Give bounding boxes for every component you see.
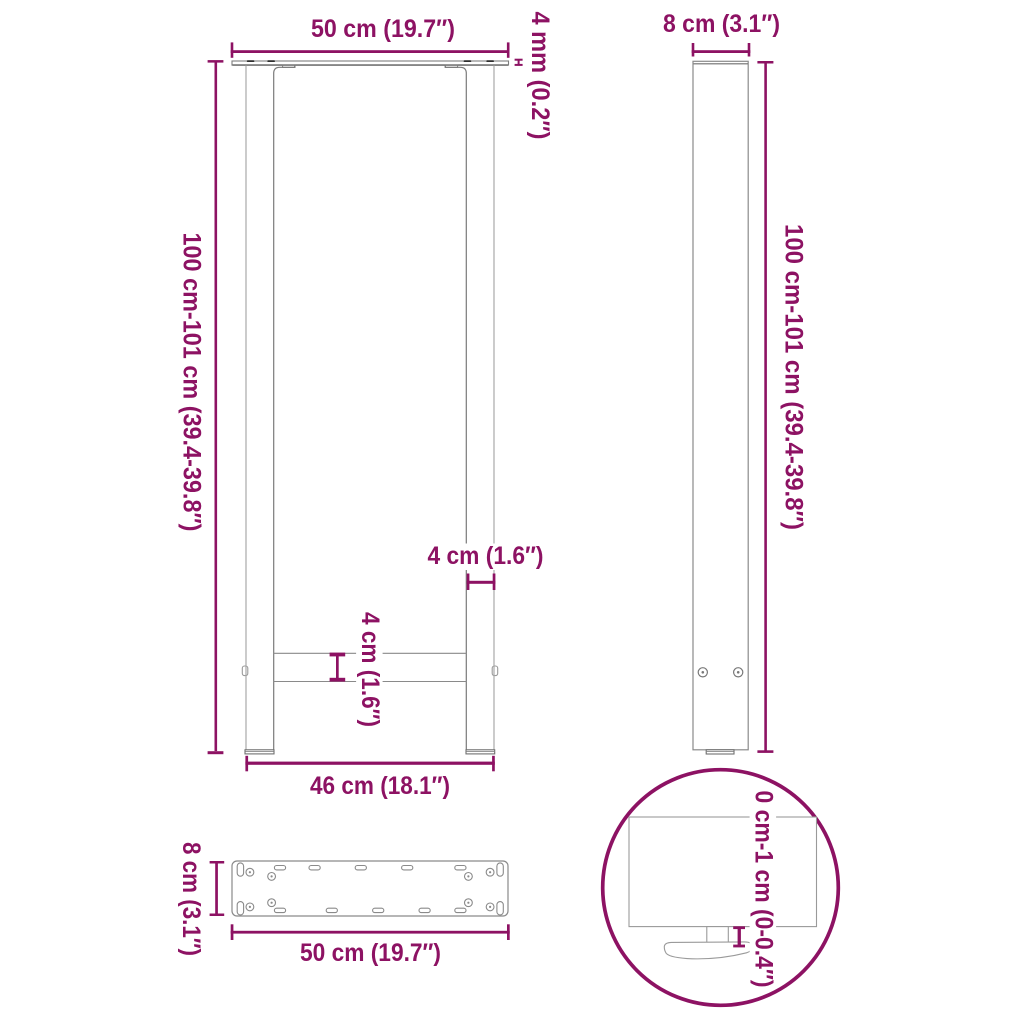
svg-text:50 cm (19.7″): 50 cm (19.7″) <box>300 939 441 967</box>
svg-text:0 cm-1 cm (0-0.4″): 0 cm-1 cm (0-0.4″) <box>750 791 778 988</box>
svg-text:8 cm (3.1″): 8 cm (3.1″) <box>177 842 205 956</box>
svg-text:100 cm-101 cm (39.4-39.8″): 100 cm-101 cm (39.4-39.8″) <box>178 233 206 532</box>
svg-text:4 cm (1.6″): 4 cm (1.6″) <box>428 542 544 570</box>
svg-text:8 cm (3.1″): 8 cm (3.1″) <box>663 10 780 38</box>
svg-text:4 cm (1.6″): 4 cm (1.6″) <box>356 612 384 727</box>
svg-text:4 mm (0.2″): 4 mm (0.2″) <box>526 12 554 140</box>
svg-text:50 cm (19.7″): 50 cm (19.7″) <box>311 15 455 43</box>
svg-text:46 cm (18.1″): 46 cm (18.1″) <box>310 772 450 800</box>
svg-text:100 cm-101 cm (39.4-39.8″): 100 cm-101 cm (39.4-39.8″) <box>780 224 808 530</box>
